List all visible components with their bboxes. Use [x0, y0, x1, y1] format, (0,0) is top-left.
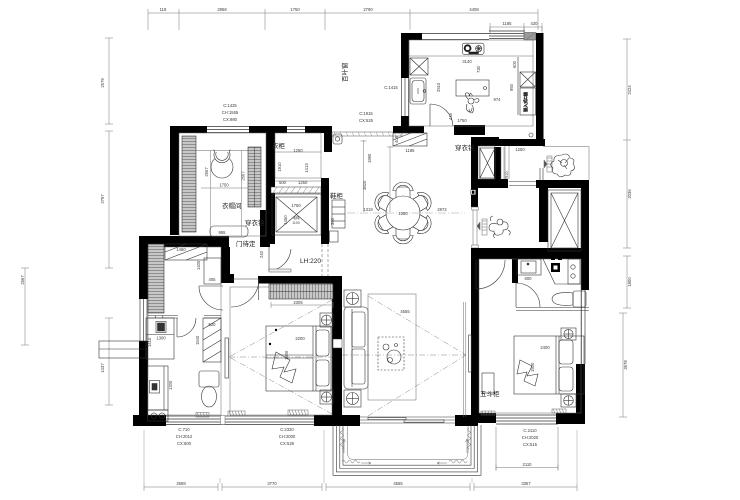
svg-text:百叶窗: 百叶窗 [340, 63, 349, 83]
svg-text:1910: 1910 [277, 162, 282, 172]
svg-text:1800: 1800 [284, 350, 289, 360]
svg-text:4555: 4555 [400, 309, 410, 314]
svg-text:嵌入式C箱: 嵌入式C箱 [522, 92, 529, 112]
svg-text:730: 730 [476, 65, 481, 73]
svg-text:405: 405 [394, 135, 399, 143]
svg-text:1800: 1800 [627, 277, 632, 287]
svg-text:3578: 3578 [623, 360, 628, 370]
svg-text:3140: 3140 [462, 59, 472, 64]
svg-text:1185: 1185 [405, 148, 415, 153]
svg-text:1100: 1100 [292, 221, 300, 225]
svg-text:118: 118 [160, 7, 167, 12]
svg-text:LH:220: LH:220 [300, 258, 321, 265]
svg-text:2667: 2667 [241, 171, 246, 181]
svg-text:CX:525: CX:525 [359, 118, 374, 123]
svg-text:2510: 2510 [436, 82, 441, 92]
svg-text:C:2320: C:2320 [280, 427, 294, 432]
svg-text:1185: 1185 [502, 21, 512, 26]
svg-text:600: 600 [512, 60, 517, 68]
svg-text:鞋柜: 鞋柜 [330, 191, 344, 200]
svg-text:2424: 2424 [627, 85, 632, 95]
svg-text:衣柜: 衣柜 [272, 141, 286, 150]
svg-text:1350: 1350 [398, 211, 408, 216]
svg-text:3770: 3770 [267, 481, 277, 486]
svg-text:1540: 1540 [195, 335, 200, 345]
svg-text:950: 950 [509, 83, 514, 91]
svg-text:CH:1555: CH:1555 [222, 110, 239, 115]
svg-text:350: 350 [330, 217, 335, 225]
svg-text:974: 974 [494, 97, 502, 102]
svg-text:2305: 2305 [293, 300, 303, 305]
svg-text:1460: 1460 [176, 247, 186, 252]
svg-text:1750: 1750 [457, 118, 467, 123]
svg-text:1413: 1413 [304, 163, 309, 173]
svg-text:2567: 2567 [20, 275, 25, 285]
svg-text:C:710: C:710 [178, 427, 190, 432]
svg-text:1750: 1750 [290, 7, 300, 12]
svg-text:CH:2012: CH:2012 [176, 434, 193, 439]
svg-text:1200: 1200 [168, 380, 173, 390]
svg-text:C:1425: C:1425 [223, 103, 237, 108]
svg-text:4408: 4408 [469, 7, 479, 12]
svg-text:1410: 1410 [147, 337, 152, 347]
svg-text:CX:515: CX:515 [523, 442, 538, 447]
svg-text:1990: 1990 [367, 153, 372, 163]
svg-text:2510: 2510 [505, 172, 509, 180]
svg-text:门待定: 门待定 [236, 239, 256, 248]
svg-text:1250: 1250 [298, 180, 308, 185]
svg-text:1319: 1319 [363, 207, 373, 212]
svg-text:600: 600 [525, 276, 533, 281]
svg-text:穿衣镜: 穿衣镜 [455, 143, 475, 152]
svg-text:1437: 1437 [100, 363, 105, 373]
svg-text:C:1915: C:1915 [359, 111, 373, 116]
svg-text:2036: 2036 [627, 189, 632, 199]
svg-text:240: 240 [259, 250, 264, 258]
svg-text:3820: 3820 [362, 180, 367, 190]
svg-text:CX:528: CX:528 [280, 441, 295, 446]
svg-text:1750: 1750 [219, 183, 229, 188]
svg-text:500: 500 [279, 180, 287, 185]
svg-text:1450: 1450 [283, 215, 288, 225]
svg-text:1250: 1250 [293, 148, 303, 153]
svg-text:2797: 2797 [100, 194, 105, 204]
svg-text:420: 420 [531, 21, 539, 26]
svg-text:2958: 2958 [217, 7, 227, 12]
svg-text:1750: 1750 [291, 203, 301, 208]
svg-text:五斗柜: 五斗柜 [480, 389, 500, 398]
svg-text:2790: 2790 [363, 7, 373, 12]
svg-text:4565: 4565 [393, 481, 403, 486]
svg-text:1250: 1250 [515, 147, 525, 152]
svg-text:2400: 2400 [540, 345, 550, 350]
svg-text:1400: 1400 [196, 260, 201, 270]
svg-text:2110: 2110 [522, 462, 532, 467]
svg-text:CH:2000: CH:2000 [279, 434, 296, 439]
svg-text:955: 955 [219, 230, 227, 235]
svg-text:2588: 2588 [176, 481, 186, 486]
svg-text:3357: 3357 [521, 481, 531, 486]
svg-text:1500: 1500 [530, 362, 535, 372]
svg-text:2972: 2972 [437, 207, 447, 212]
svg-text:2579: 2579 [100, 78, 105, 88]
svg-text:520: 520 [209, 322, 217, 327]
svg-text:C:1415: C:1415 [384, 85, 398, 90]
svg-text:C:2110: C:2110 [523, 428, 537, 433]
svg-text:2200: 2200 [295, 336, 305, 341]
svg-text:405: 405 [209, 277, 217, 282]
svg-text:2567: 2567 [204, 167, 209, 177]
svg-text:1300: 1300 [156, 336, 166, 341]
svg-text:CX:600: CX:600 [177, 441, 192, 446]
svg-text:CH:2020: CH:2020 [522, 435, 539, 440]
svg-text:穿衣镜: 穿衣镜 [245, 218, 265, 227]
svg-text:电梯: 电梯 [293, 215, 301, 220]
svg-text:CX:980: CX:980 [223, 117, 238, 122]
svg-text:衣帽间: 衣帽间 [222, 201, 242, 210]
